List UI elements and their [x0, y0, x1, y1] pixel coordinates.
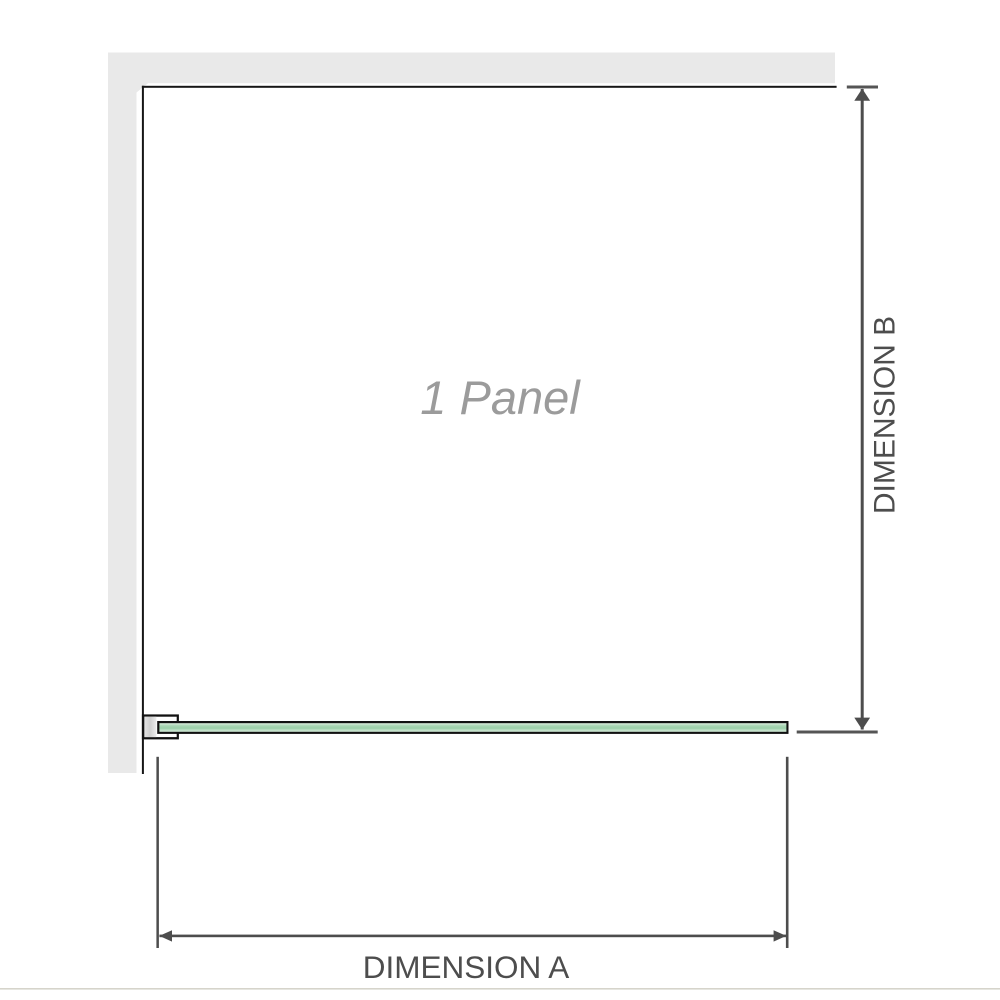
svg-text:DIMENSION A: DIMENSION A	[363, 949, 570, 985]
svg-text:1 Panel: 1 Panel	[420, 371, 581, 424]
svg-text:DIMENSION B: DIMENSION B	[869, 316, 902, 514]
